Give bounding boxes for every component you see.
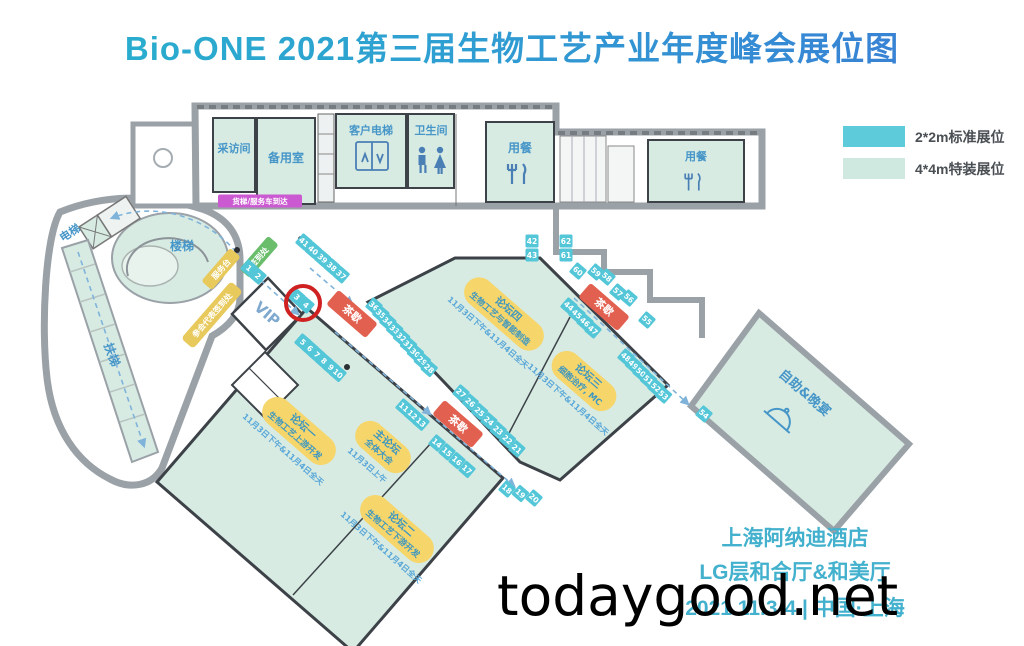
booth-42: 42 xyxy=(526,235,539,248)
freight-access-label: 货梯/服务车到达 xyxy=(218,195,302,208)
svg-text:43: 43 xyxy=(527,251,537,260)
annex-room xyxy=(133,124,196,206)
svg-text:61: 61 xyxy=(561,251,571,260)
room-label-interview: 采访间 xyxy=(217,141,251,155)
watermark: todaygood.net xyxy=(497,564,898,628)
room-interview xyxy=(213,118,255,192)
booth-62: 62 xyxy=(560,235,573,248)
booth-60: 60 xyxy=(569,262,587,280)
svg-text:42: 42 xyxy=(527,237,537,246)
service-core-2 xyxy=(608,146,634,202)
room-label-spare: 备用室 xyxy=(267,150,304,165)
service-core-1 xyxy=(560,136,606,202)
room-dining-1 xyxy=(486,122,554,202)
svg-text:62: 62 xyxy=(561,237,571,246)
room-buffet xyxy=(691,313,909,531)
room-label-dining-1: 用餐 xyxy=(507,140,533,155)
booth-map-poster: Bio-ONE 2021第三届生物工艺产业年度峰会展位图 2*2m标准展位 4*… xyxy=(0,0,1024,646)
booth-43: 43 xyxy=(526,249,539,262)
room-label-dining-2: 用餐 xyxy=(685,149,708,163)
room-label-toilet: 卫生间 xyxy=(415,123,448,137)
pillar-dot xyxy=(344,364,350,370)
stair-shaft xyxy=(318,114,334,202)
room-label-customer-elevator: 客户电梯 xyxy=(348,123,393,137)
booth-55: 55 xyxy=(638,311,656,329)
freight-access-text: 货梯/服务车到达 xyxy=(231,196,288,206)
room-label-stairs: 楼梯 xyxy=(170,238,194,253)
venue-name: 上海阿纳迪酒店 xyxy=(630,522,960,552)
booth-61: 61 xyxy=(560,249,573,262)
